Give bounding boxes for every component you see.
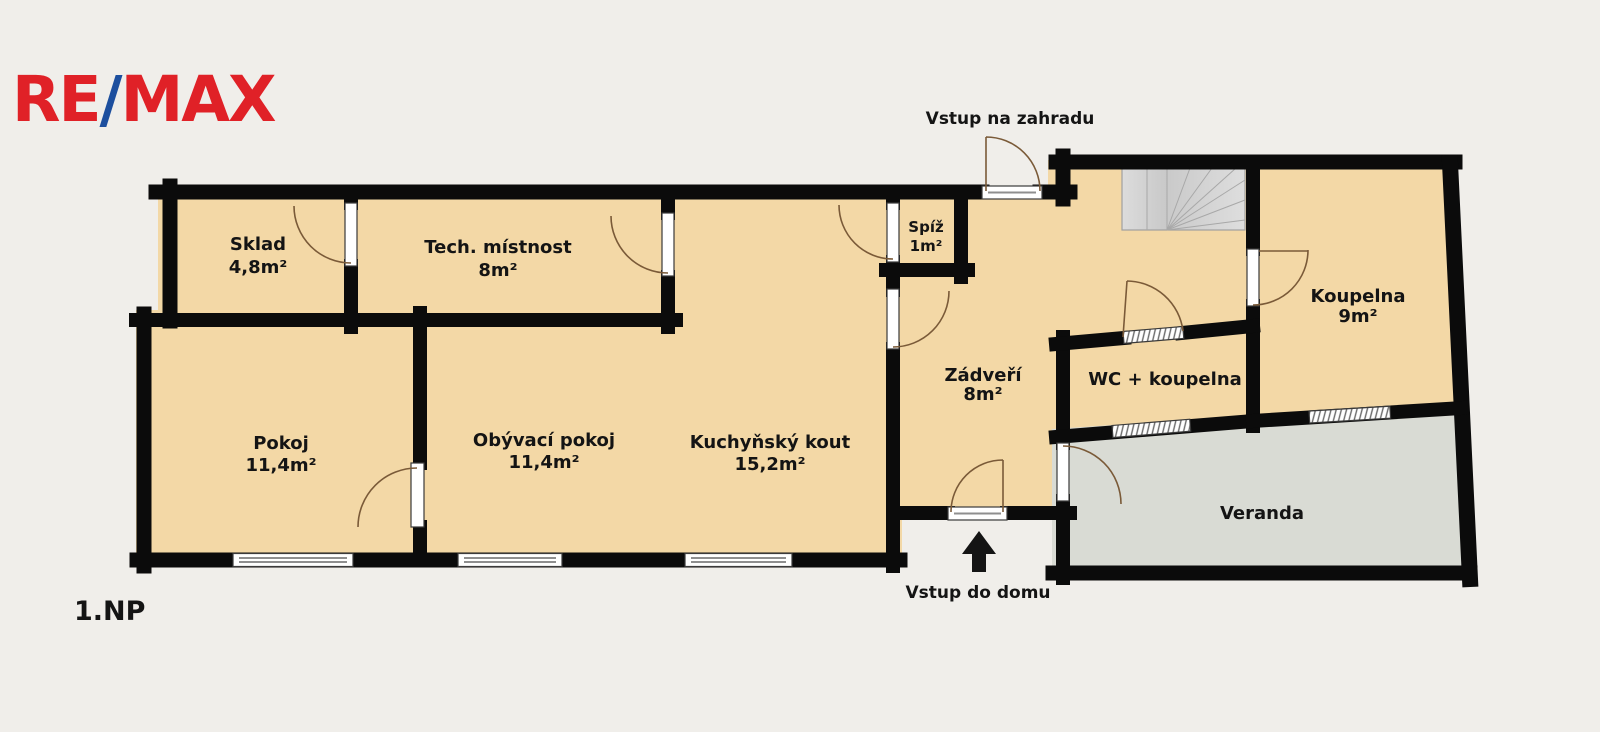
door-garden — [982, 137, 1042, 199]
label-obyvaci-area: 11,4m² — [508, 452, 579, 473]
label-veranda: Veranda — [1220, 503, 1304, 524]
logo-max: MAX — [121, 63, 276, 136]
window-obyvaci — [458, 554, 562, 567]
label-obyvaci: Obývací pokoj — [473, 430, 615, 451]
label-house-entrance: Vstup do domu — [905, 583, 1050, 603]
label-zadveri-area: 8m² — [963, 384, 1002, 405]
window-kuchyn — [685, 554, 792, 567]
label-spiz-area: 1m² — [910, 237, 943, 255]
remax-logo: RE/MAX — [12, 63, 276, 136]
window-pokoj — [233, 554, 353, 567]
label-tech-area: 8m² — [478, 260, 517, 281]
label-zadveri: Zádveří — [944, 365, 1022, 386]
label-kuchyn: Kuchyňský kout — [690, 432, 851, 453]
label-pokoj: Pokoj — [253, 433, 309, 454]
label-spiz: Spíž — [908, 218, 944, 236]
label-koupelna: Koupelna — [1310, 286, 1405, 307]
label-sklad-area: 4,8m² — [229, 257, 288, 278]
floor-level-label: 1.NP — [74, 596, 145, 627]
floor-plan: Sklad 4,8m² Tech. místnost 8m² Pokoj 11,… — [0, 0, 1600, 732]
logo-re: RE — [12, 63, 100, 136]
stairs — [1122, 168, 1245, 230]
entrance-arrow-icon — [962, 531, 996, 572]
label-koupelna-area: 9m² — [1338, 306, 1377, 327]
label-pokoj-area: 11,4m² — [245, 455, 316, 476]
label-tech: Tech. místnost — [424, 237, 572, 258]
svg-text:RE/MAX: RE/MAX — [12, 63, 276, 136]
label-kuchyn-area: 15,2m² — [734, 454, 805, 475]
floor-plan-page: Sklad 4,8m² Tech. místnost 8m² Pokoj 11,… — [0, 0, 1600, 732]
label-wc: WC + koupelna — [1088, 369, 1242, 390]
label-garden-entrance: Vstup na zahradu — [926, 109, 1095, 129]
label-sklad: Sklad — [230, 234, 286, 255]
